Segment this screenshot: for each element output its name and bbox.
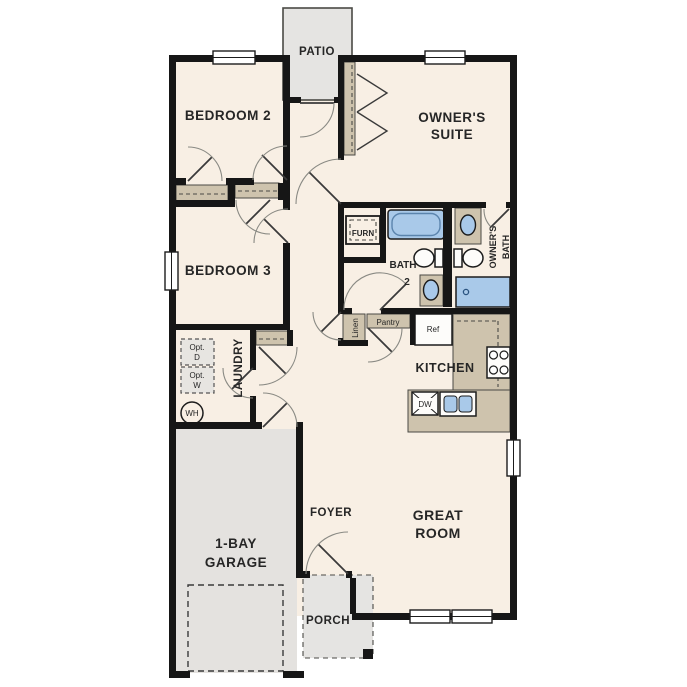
floor-plan-drawing: PATIO BEDROOM 2 OWNER'S SUITE BEDROOM 3 … [0,0,687,687]
owners-closet [344,62,355,155]
kitchen-sink-icon [440,392,476,416]
foyer-label: FOYER [310,507,352,519]
opt-washer-label-2: W [193,381,201,390]
garage-label-1: 1-BAY [215,536,257,551]
shower-icon [456,277,510,307]
owners-suite-label-1: OWNER'S [418,110,485,125]
opt-washer-label-1: Opt. [189,371,204,380]
bedroom3-label: BEDROOM 3 [185,263,271,278]
garage-label-2: GARAGE [205,555,267,570]
sink-icon [424,280,439,300]
window [452,610,492,623]
great-room-label-1: GREAT [413,507,463,523]
garage-floor [176,429,297,673]
porch-label: PORCH [306,615,350,627]
bath2-label-1: BATH [389,260,416,271]
owners-suite-label-2: SUITE [431,127,473,142]
opt-dryer-label-1: Opt. [189,343,204,352]
porch-post [363,649,373,659]
patio-label: PATIO [299,46,335,58]
window [410,610,450,623]
sink-icon [461,215,476,235]
stove-icon [487,347,510,378]
bath2-label-2: 2 [404,277,410,288]
opt-dryer-label-2: D [194,353,200,362]
dishwasher-label: DW [418,400,432,409]
window [213,51,255,64]
toilet-icon [414,249,443,267]
hall-closet [256,331,289,345]
owners-bath-label-2: BATH [501,235,511,259]
laundry-label: LAUNDRY [233,338,245,397]
great-room-label-2: ROOM [415,525,461,541]
owners-bath-label-1: OWNER'S [488,226,498,269]
window [165,252,178,290]
pantry-label: Pantry [376,318,399,327]
window [425,51,465,64]
water-heater-label: WH [185,409,199,418]
linen-label: Linen [351,318,360,338]
bedroom2-label: BEDROOM 2 [185,108,271,123]
floor-plan-canvas: PATIO BEDROOM 2 OWNER'S SUITE BEDROOM 3 … [0,0,687,687]
window [507,440,520,476]
refrigerator-label: Ref [427,325,440,334]
kitchen-label: KITCHEN [415,361,474,375]
furnace-label: FURN [352,229,374,238]
toilet-icon [454,249,483,267]
